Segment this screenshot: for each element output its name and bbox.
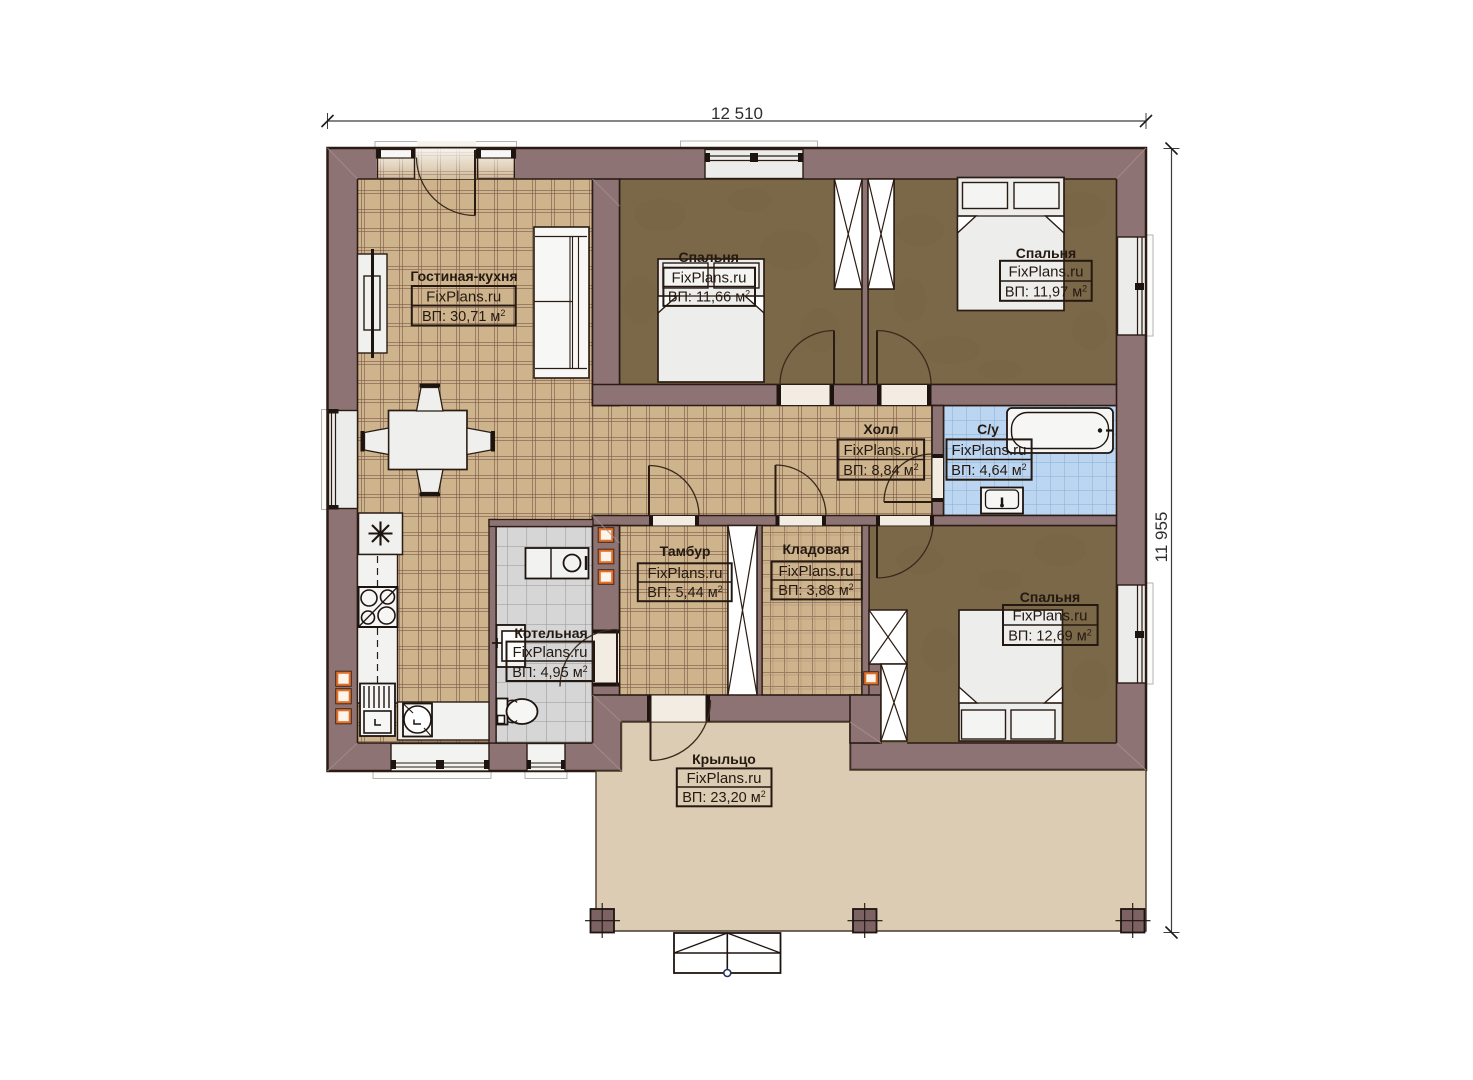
svg-text:Холл: Холл bbox=[863, 421, 898, 437]
svg-text:Спальня: Спальня bbox=[678, 249, 738, 265]
svg-text:FixPlans.ru: FixPlans.ru bbox=[951, 442, 1026, 459]
svg-text:FixPlans.ru: FixPlans.ru bbox=[426, 289, 501, 306]
svg-text:С/у: С/у bbox=[977, 421, 999, 437]
svg-text:FixPlans.ru: FixPlans.ru bbox=[647, 565, 722, 582]
svg-text:ВП: 11,66 м2: ВП: 11,66 м2 bbox=[668, 289, 750, 306]
svg-text:ВП: 4,95 м2: ВП: 4,95 м2 bbox=[512, 664, 587, 681]
svg-text:ВП: 23,20 м2: ВП: 23,20 м2 bbox=[682, 789, 765, 806]
svg-text:FixPlans.ru: FixPlans.ru bbox=[778, 563, 853, 580]
svg-text:11 955: 11 955 bbox=[1152, 512, 1171, 563]
svg-text:ВП: 12,69 м2: ВП: 12,69 м2 bbox=[1008, 628, 1091, 645]
svg-text:ВП: 30,71 м2: ВП: 30,71 м2 bbox=[422, 308, 505, 325]
svg-text:Котельная: Котельная bbox=[514, 625, 587, 641]
svg-text:Кладовая: Кладовая bbox=[782, 541, 849, 557]
svg-text:Спальня: Спальня bbox=[1016, 245, 1076, 261]
svg-text:FixPlans.ru: FixPlans.ru bbox=[1008, 264, 1083, 281]
svg-text:Крыльцо: Крыльцо bbox=[692, 751, 756, 767]
svg-text:ВП: 4,64 м2: ВП: 4,64 м2 bbox=[951, 462, 1026, 479]
svg-text:FixPlans.ru: FixPlans.ru bbox=[671, 270, 746, 287]
svg-text:Тамбур: Тамбур bbox=[660, 543, 711, 559]
svg-text:Гостиная-кухня: Гостиная-кухня bbox=[410, 268, 517, 284]
svg-text:ВП: 8,84 м2: ВП: 8,84 м2 bbox=[843, 462, 918, 479]
svg-text:FixPlans.ru: FixPlans.ru bbox=[843, 442, 918, 459]
svg-text:ВП: 3,88 м2: ВП: 3,88 м2 bbox=[778, 582, 853, 599]
svg-text:FixPlans.ru: FixPlans.ru bbox=[1012, 608, 1087, 625]
svg-text:FixPlans.ru: FixPlans.ru bbox=[512, 644, 587, 661]
svg-text:Спальня: Спальня bbox=[1020, 589, 1080, 605]
svg-text:12 510: 12 510 bbox=[711, 104, 763, 123]
svg-text:ВП: 11,97 м2: ВП: 11,97 м2 bbox=[1005, 284, 1087, 301]
svg-text:FixPlans.ru: FixPlans.ru bbox=[686, 770, 761, 787]
svg-text:ВП: 5,44 м2: ВП: 5,44 м2 bbox=[647, 584, 722, 601]
